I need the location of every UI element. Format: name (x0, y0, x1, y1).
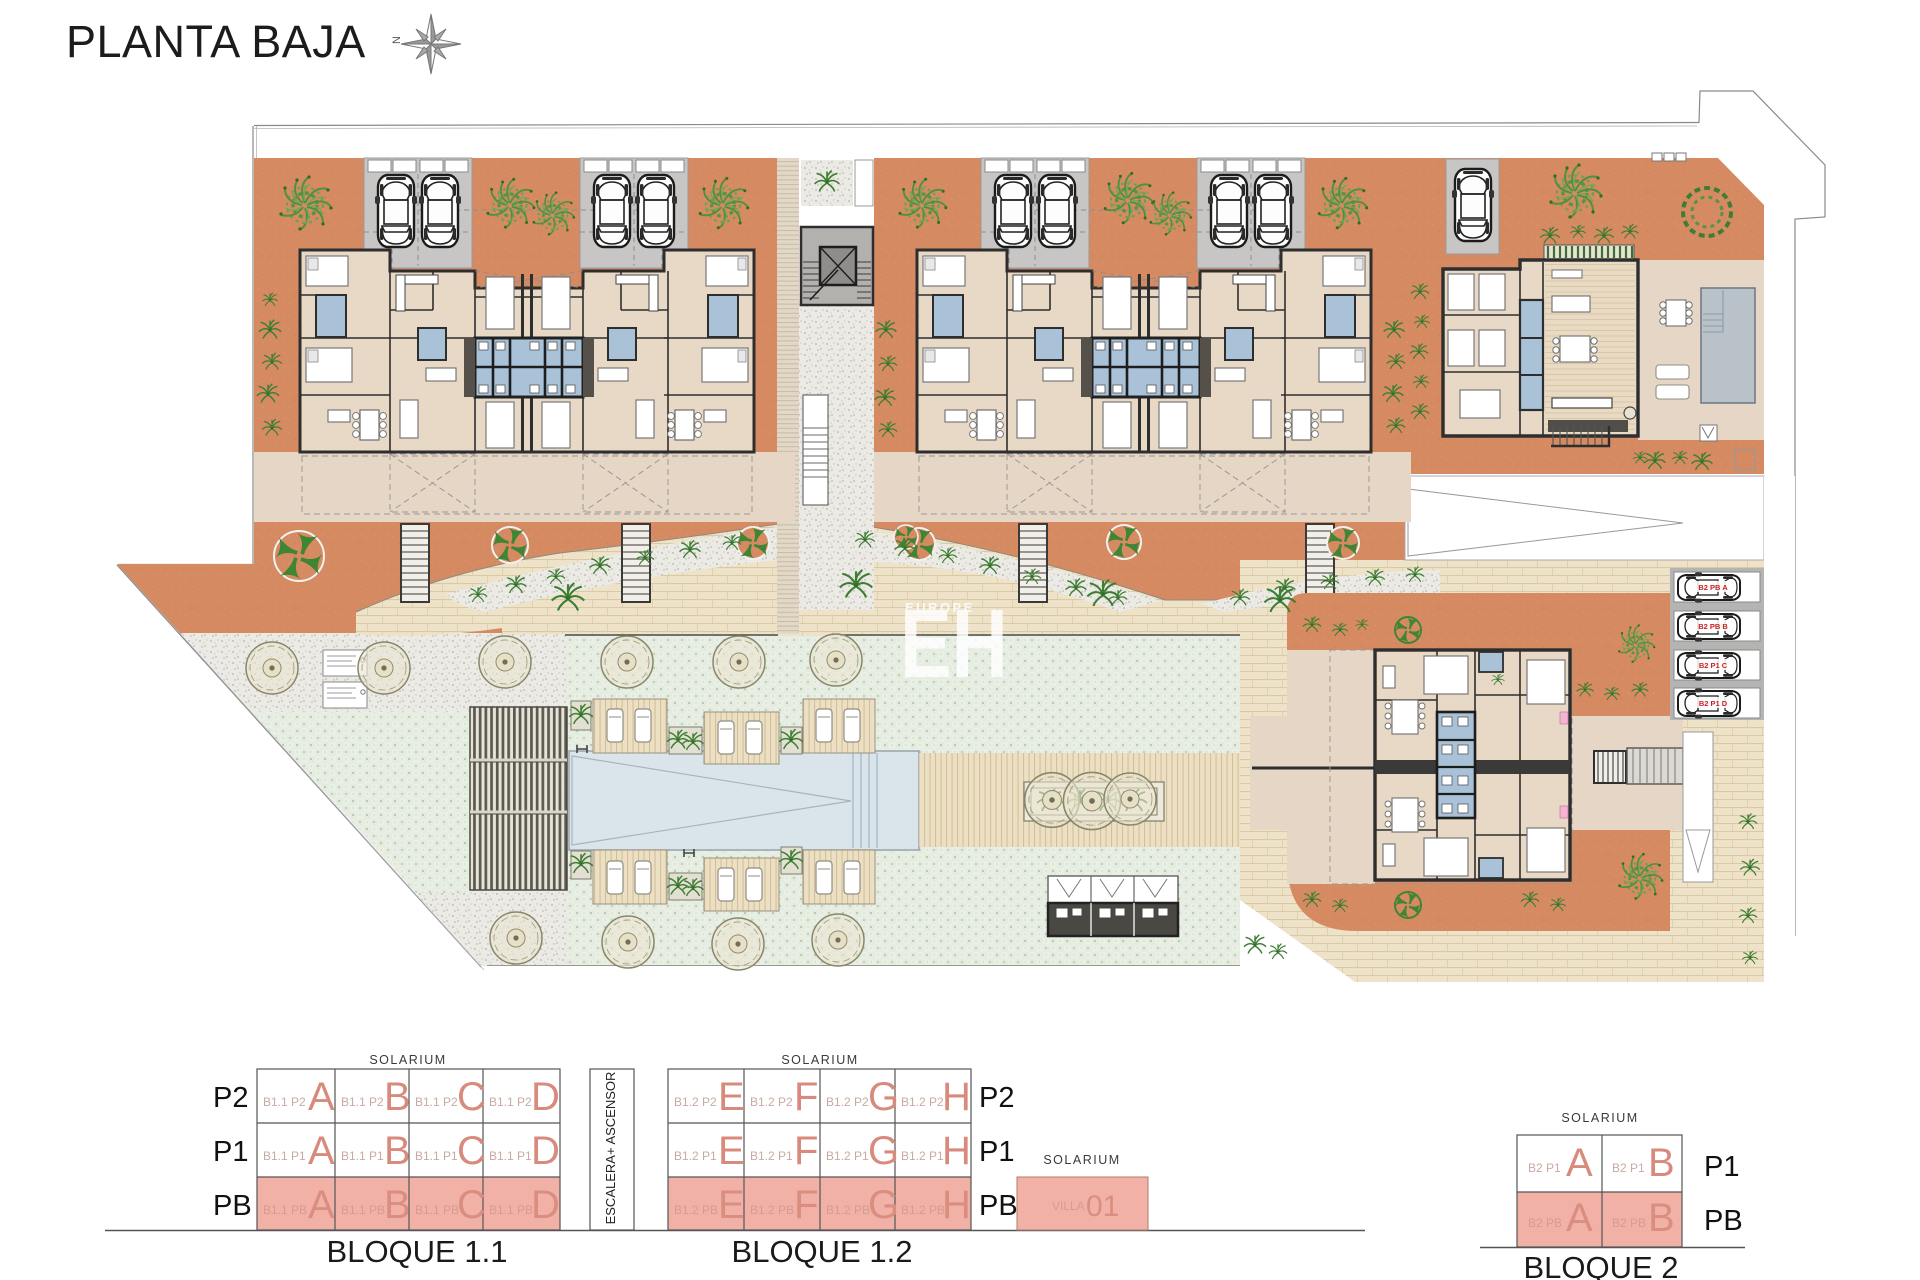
svg-text:B2 P1 C: B2 P1 C (1699, 661, 1728, 670)
svg-text:C: C (457, 1183, 486, 1227)
svg-text:B2 PB A: B2 PB A (1698, 583, 1728, 592)
svg-text:B2 PB: B2 PB (1528, 1216, 1562, 1230)
svg-text:B1.1 P2: B1.1 P2 (415, 1095, 458, 1109)
svg-text:N: N (391, 36, 403, 44)
svg-text:SOLARIUM: SOLARIUM (781, 1053, 858, 1067)
svg-text:01: 01 (1086, 1190, 1119, 1223)
svg-text:H: H (942, 1075, 971, 1119)
svg-text:B1.2 PB: B1.2 PB (826, 1203, 870, 1217)
svg-text:P1: P1 (1704, 1151, 1739, 1183)
svg-text:D: D (531, 1129, 560, 1173)
svg-text:B1.1 PB: B1.1 PB (263, 1203, 307, 1217)
svg-text:P1: P1 (979, 1136, 1014, 1168)
svg-text:BLOQUE 1.1: BLOQUE 1.1 (327, 1234, 508, 1269)
svg-text:ESCALERA+ ASCENSOR: ESCALERA+ ASCENSOR (603, 1072, 618, 1225)
svg-text:SOLARIUM: SOLARIUM (369, 1053, 446, 1067)
svg-text:PB: PB (979, 1190, 1018, 1222)
svg-text:B1.1 PB: B1.1 PB (341, 1203, 385, 1217)
svg-text:P1: P1 (213, 1136, 248, 1168)
svg-text:B1.2 P1: B1.2 P1 (826, 1149, 869, 1163)
svg-text:A: A (308, 1129, 335, 1173)
svg-text:E: E (718, 1183, 745, 1227)
svg-text:B1.1 P1: B1.1 P1 (341, 1149, 384, 1163)
svg-text:EH: EH (900, 589, 1008, 698)
svg-text:B1.2 PB: B1.2 PB (674, 1203, 718, 1217)
svg-text:B2 P1 D: B2 P1 D (1699, 699, 1728, 708)
svg-text:B1.2 P2: B1.2 P2 (674, 1095, 717, 1109)
svg-text:B1.2 P2: B1.2 P2 (750, 1095, 793, 1109)
svg-text:B: B (1648, 1196, 1675, 1240)
svg-text:PB: PB (213, 1190, 252, 1222)
svg-text:BLOQUE 2: BLOQUE 2 (1523, 1250, 1678, 1280)
svg-text:E: E (718, 1129, 745, 1173)
svg-text:H: H (942, 1129, 971, 1173)
svg-text:B2 P1: B2 P1 (1528, 1161, 1561, 1175)
svg-text:G: G (868, 1183, 899, 1227)
svg-text:BLOQUE 1.2: BLOQUE 1.2 (732, 1234, 913, 1269)
svg-text:A: A (1566, 1196, 1593, 1240)
svg-text:D: D (531, 1183, 560, 1227)
svg-text:P2: P2 (979, 1082, 1014, 1114)
svg-text:D: D (531, 1075, 560, 1119)
svg-text:B1.2 P2: B1.2 P2 (826, 1095, 869, 1109)
svg-text:B: B (384, 1129, 411, 1173)
svg-text:G: G (868, 1129, 899, 1173)
svg-text:PLANTA BAJA: PLANTA BAJA (66, 16, 366, 67)
svg-text:A: A (308, 1183, 335, 1227)
svg-text:C: C (457, 1129, 486, 1173)
svg-text:B2 PB: B2 PB (1612, 1216, 1646, 1230)
svg-text:PB: PB (1704, 1205, 1743, 1237)
svg-text:B1.2 PB: B1.2 PB (901, 1203, 945, 1217)
svg-text:B1.1 P2: B1.1 P2 (263, 1095, 306, 1109)
svg-text:A: A (308, 1075, 335, 1119)
svg-text:A: A (1566, 1141, 1593, 1185)
svg-text:B: B (1648, 1141, 1675, 1185)
svg-text:F: F (794, 1075, 818, 1119)
svg-text:SOLARIUM: SOLARIUM (1043, 1153, 1120, 1167)
svg-text:B1.2 P2: B1.2 P2 (901, 1095, 944, 1109)
svg-text:B2 PB B: B2 PB B (1698, 622, 1728, 631)
svg-text:B1.2 P1: B1.2 P1 (750, 1149, 793, 1163)
svg-text:P2: P2 (213, 1082, 248, 1114)
svg-text:F: F (794, 1129, 818, 1173)
svg-text:B1.1 PB: B1.1 PB (489, 1203, 533, 1217)
svg-text:B: B (384, 1075, 411, 1119)
svg-text:VILLA: VILLA (1052, 1199, 1085, 1213)
svg-text:B1.1 P1: B1.1 P1 (489, 1149, 532, 1163)
svg-text:SOLARIUM: SOLARIUM (1561, 1111, 1638, 1125)
svg-text:B1.2 P1: B1.2 P1 (901, 1149, 944, 1163)
svg-text:E: E (718, 1075, 745, 1119)
svg-text:B1.1 PB: B1.1 PB (415, 1203, 459, 1217)
svg-text:G: G (868, 1075, 899, 1119)
svg-text:B1.1 P1: B1.1 P1 (263, 1149, 306, 1163)
svg-text:B1.2 P1: B1.2 P1 (674, 1149, 717, 1163)
svg-text:B1.1 P1: B1.1 P1 (415, 1149, 458, 1163)
svg-text:B2 P1: B2 P1 (1612, 1161, 1645, 1175)
svg-text:B1.1 P2: B1.1 P2 (341, 1095, 384, 1109)
svg-text:F: F (794, 1183, 818, 1227)
svg-text:B: B (384, 1183, 411, 1227)
svg-text:H: H (942, 1183, 971, 1227)
svg-text:B1.2 PB: B1.2 PB (750, 1203, 794, 1217)
svg-text:B1.1 P2: B1.1 P2 (489, 1095, 532, 1109)
svg-text:C: C (457, 1075, 486, 1119)
